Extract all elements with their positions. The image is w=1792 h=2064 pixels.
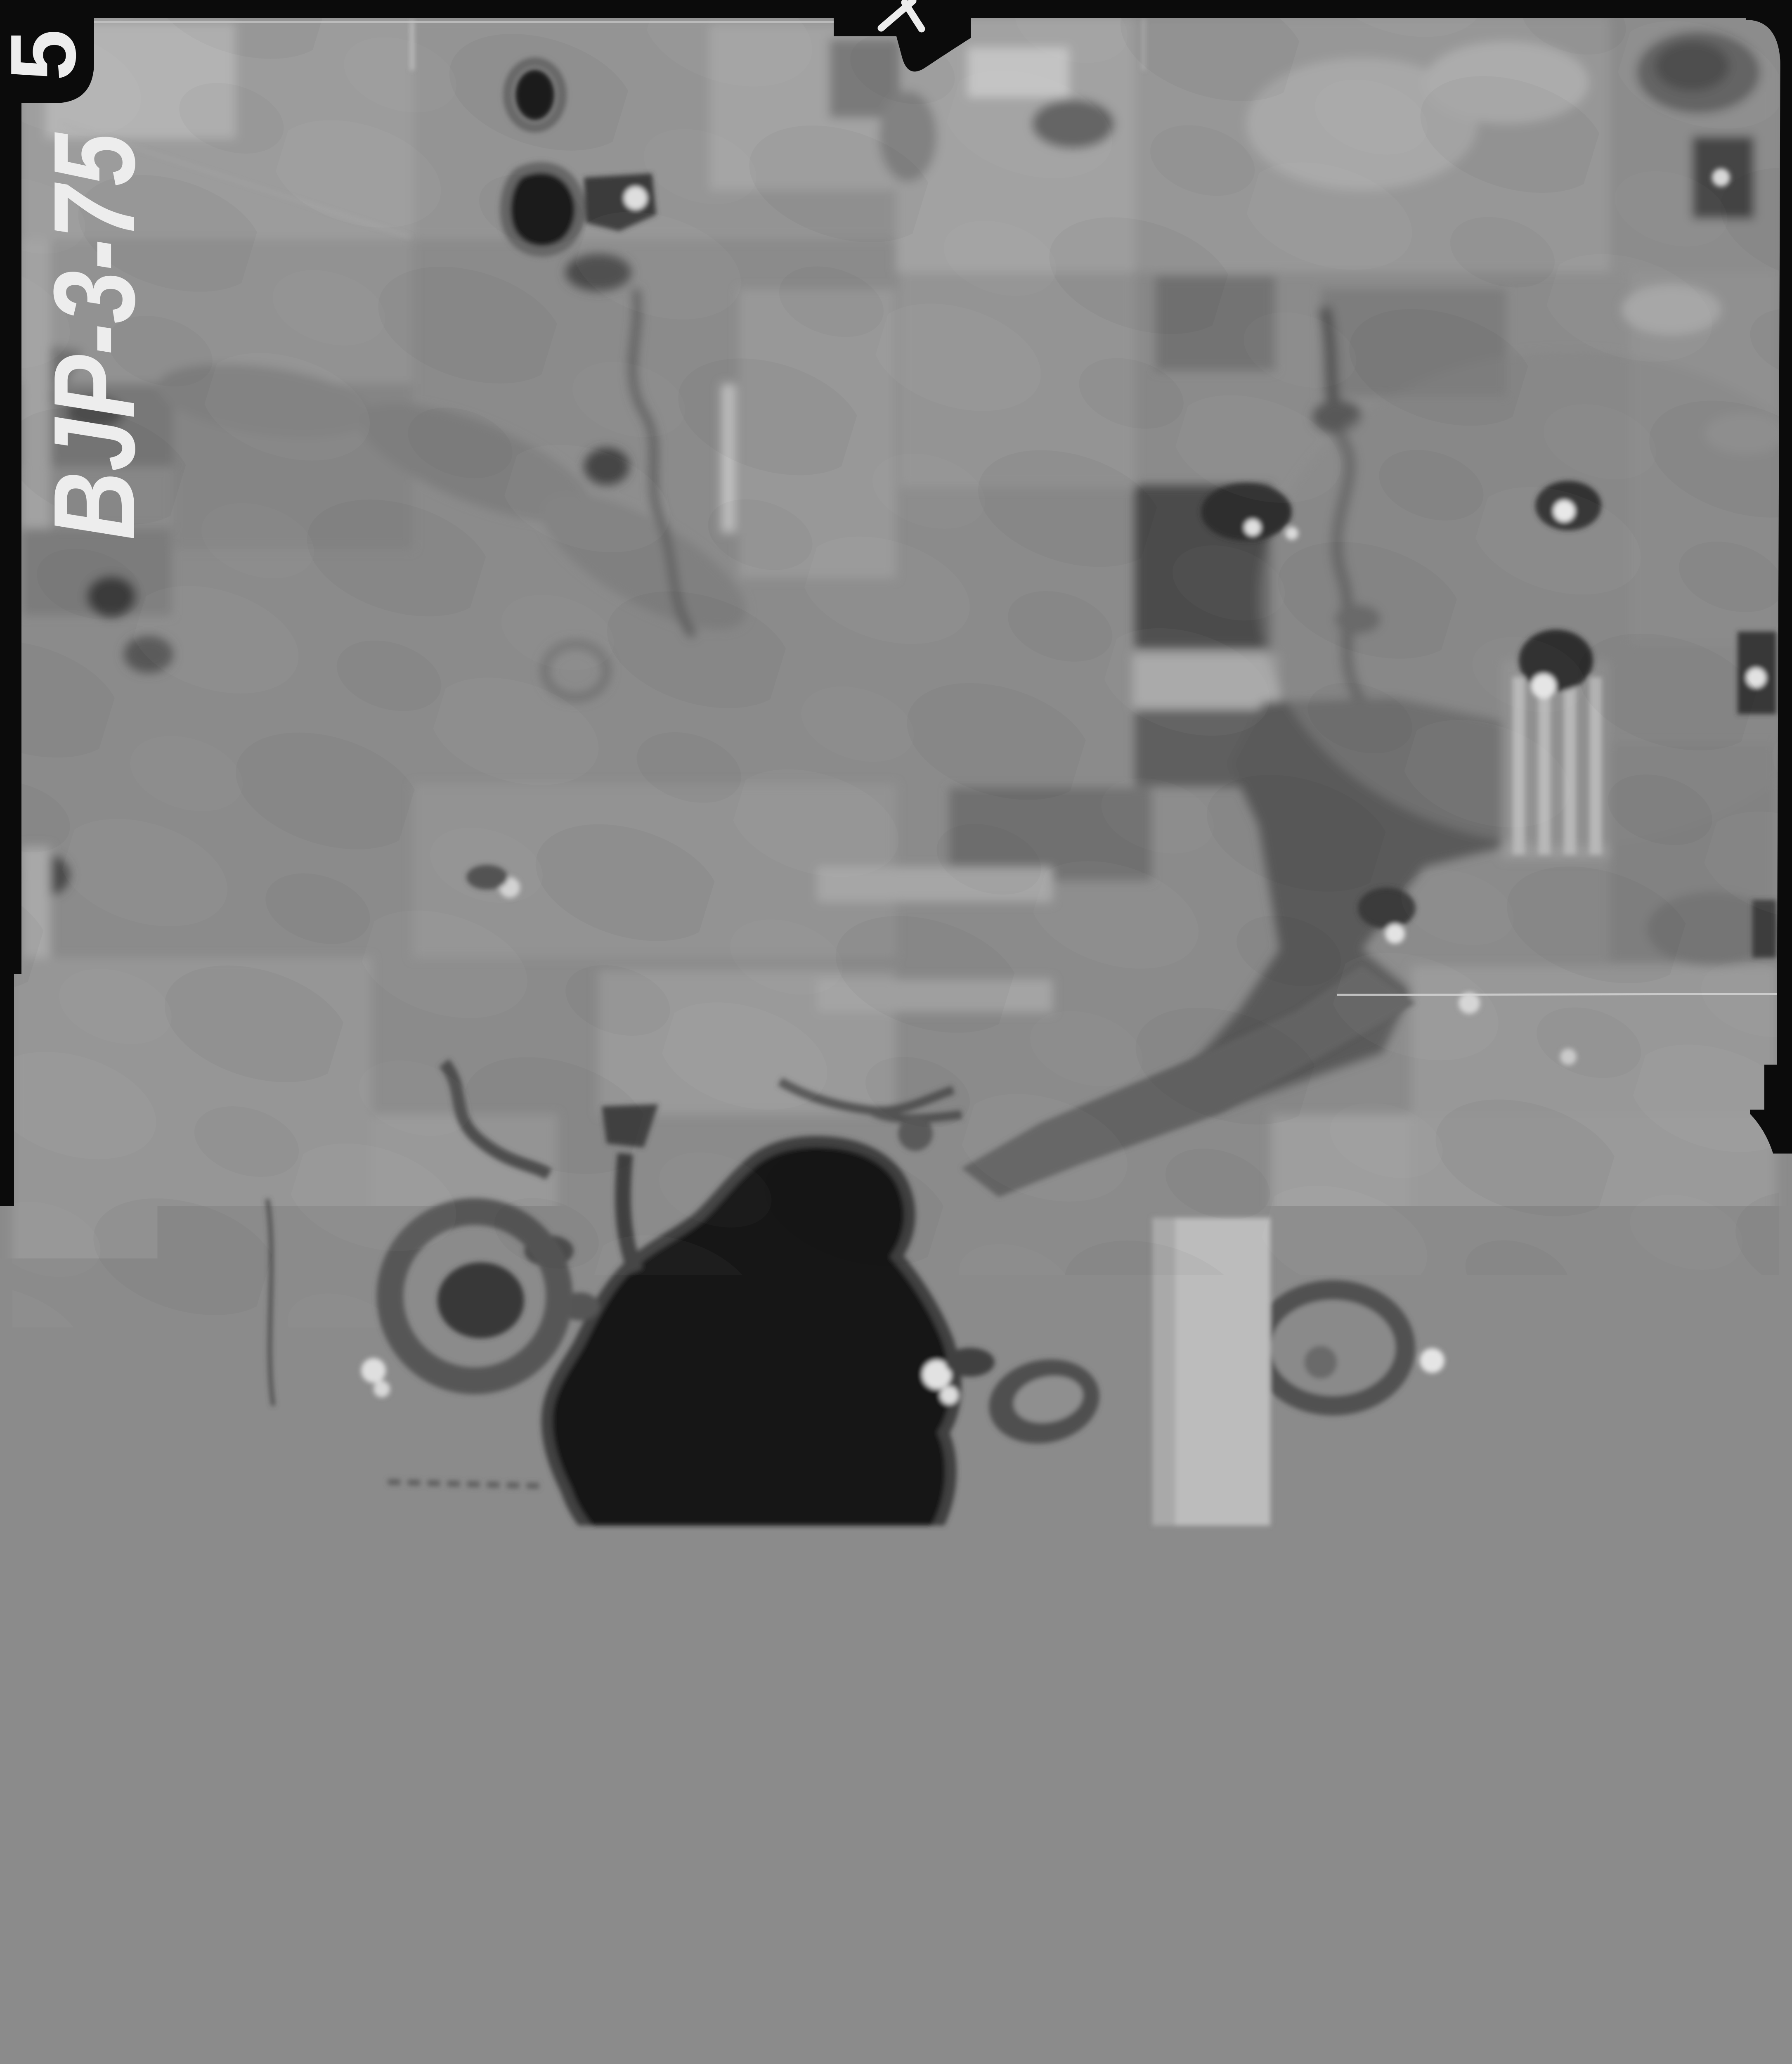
- svg-text:5: 5: [0, 29, 95, 81]
- svg-text:8-29-38: 8-29-38: [12, 1634, 151, 2064]
- svg-text:BJP-3-75: BJP-3-75: [30, 131, 159, 540]
